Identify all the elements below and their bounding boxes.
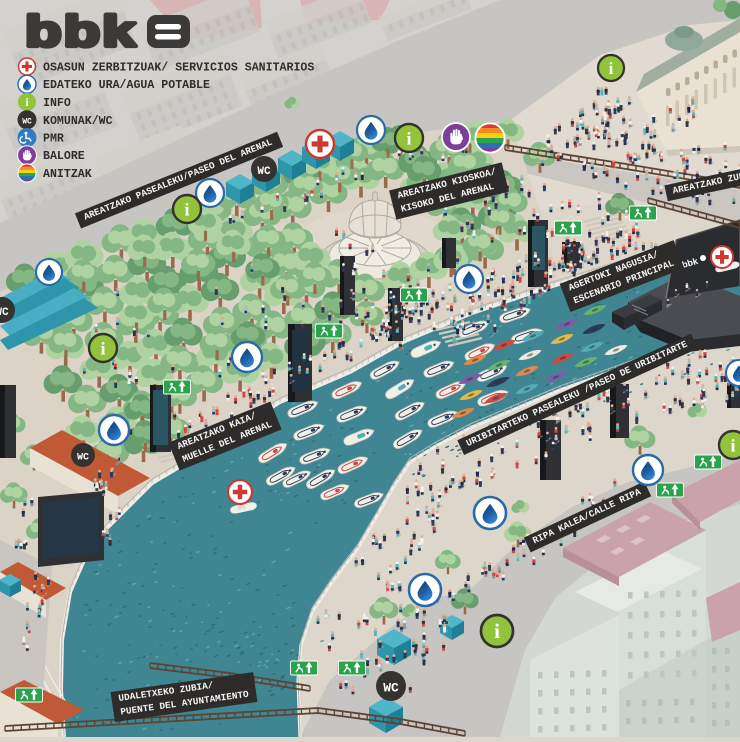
svg-text:BALORE: BALORE <box>43 150 85 163</box>
svg-text:WC: WC <box>22 117 32 126</box>
svg-text:bbk: bbk <box>25 7 138 56</box>
svg-text:WC: WC <box>257 166 271 178</box>
svg-text:OSASUN ZERBITZUAK/ SERVICIOS S: OSASUN ZERBITZUAK/ SERVICIOS SANITARIOS <box>43 62 314 75</box>
svg-text:i: i <box>406 128 411 148</box>
svg-text:i: i <box>184 199 189 219</box>
svg-text:WC: WC <box>77 453 89 464</box>
svg-text:i: i <box>100 338 105 358</box>
svg-text:EDATEKO URA/AGUA POTABLE: EDATEKO URA/AGUA POTABLE <box>43 79 210 92</box>
svg-text:PMR: PMR <box>43 133 64 146</box>
svg-text:ANITZAK: ANITZAK <box>43 168 92 181</box>
svg-text:WC: WC <box>0 307 9 319</box>
svg-text:KOMUNAK/WC: KOMUNAK/WC <box>43 115 113 128</box>
svg-text:INFO: INFO <box>43 97 71 110</box>
svg-text:i: i <box>494 619 500 643</box>
svg-text:i: i <box>730 435 735 455</box>
svg-text:i: i <box>609 59 614 78</box>
svg-text:WC: WC <box>383 681 399 696</box>
